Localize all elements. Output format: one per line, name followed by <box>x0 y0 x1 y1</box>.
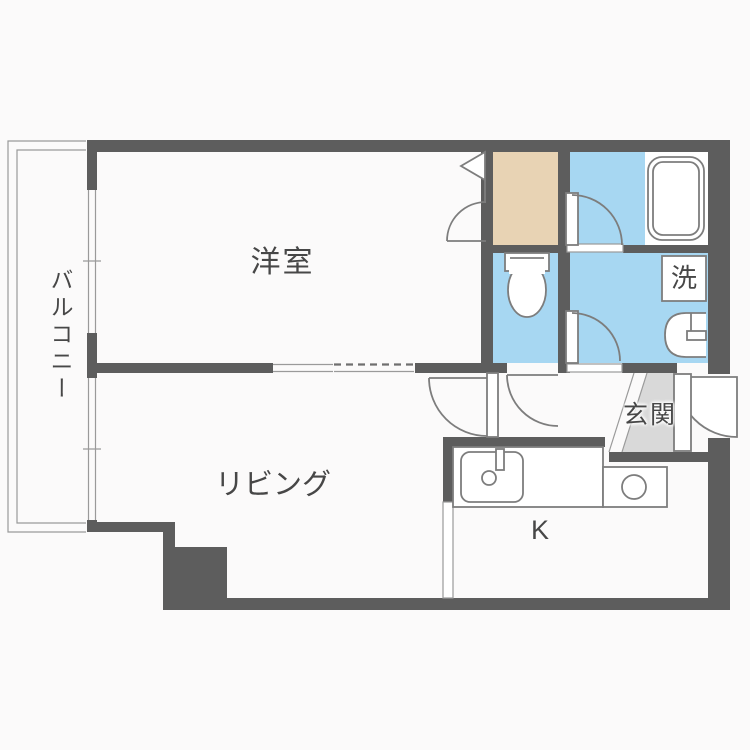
toilet-door-arc <box>507 375 558 426</box>
fixtures-layer <box>0 0 750 750</box>
washroom-door-threshold <box>567 364 622 372</box>
window-western-room <box>83 190 101 333</box>
wall-band363-b <box>558 363 567 373</box>
wall-band245-a <box>481 245 567 253</box>
kitchen-stove <box>603 467 667 507</box>
sliding-door <box>273 365 414 372</box>
wall-kitchen-left <box>443 437 453 502</box>
laundry-label: 洗 <box>662 256 706 301</box>
wall-closet-toilet-left <box>481 152 493 373</box>
kitchen-label: K <box>520 515 560 546</box>
wall-band245-b <box>623 245 708 253</box>
balcony-label: バルコニー <box>43 268 77 403</box>
wall-room-divider-b <box>415 363 488 373</box>
wall-right-upper <box>708 140 730 374</box>
entrance-label: 玄関 <box>610 395 690 431</box>
wall-bottom <box>227 598 730 610</box>
bathtub-zone <box>645 152 708 245</box>
kitchen-counter <box>453 447 603 507</box>
wall-bath-wash-left <box>558 140 570 373</box>
wall-right-lower <box>708 438 730 610</box>
wall-band363-c <box>622 363 677 373</box>
toilet-floor <box>493 252 558 363</box>
wall-living-bottom-left <box>88 522 175 532</box>
western-room-label: 洋室 <box>240 237 325 281</box>
living-label: リビング <box>215 461 325 503</box>
kitchen-drain <box>482 471 496 485</box>
kitchen-opening <box>443 502 453 598</box>
wall-room-divider-a <box>88 363 273 373</box>
closet-floor <box>493 152 558 245</box>
wall-top <box>87 140 730 152</box>
wall-entrance-bottom <box>609 452 730 462</box>
living-door-arc <box>429 378 487 436</box>
wall-hall-bottom <box>443 437 605 447</box>
wall-step-block <box>163 547 227 610</box>
kitchen-sink <box>461 452 523 502</box>
wall-left-top <box>87 140 97 190</box>
bathroom-door-threshold <box>567 244 623 252</box>
floor-plan: バルコニー 洋室 リビング 玄関 K 洗 <box>0 0 750 750</box>
kitchen-faucet <box>496 449 504 470</box>
living-door-leaf <box>487 373 498 437</box>
stove-burner <box>622 475 646 499</box>
window-living <box>83 378 101 520</box>
wall-step-connector <box>163 522 175 550</box>
wall-left-low <box>87 520 97 532</box>
wall-band363-a <box>481 363 507 373</box>
